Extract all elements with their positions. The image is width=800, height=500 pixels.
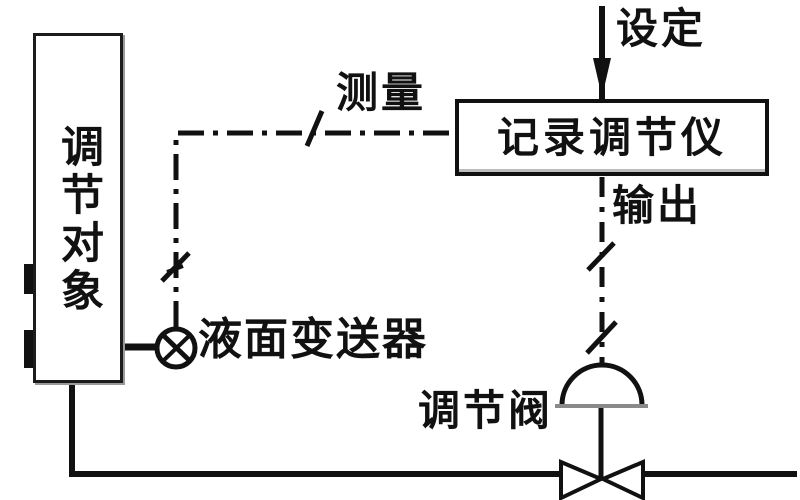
controller-box: 记录调节仪: [455, 99, 769, 176]
diagram-canvas: 调节对象 记录调节仪 设定 测量 输出 调节阀 液面变送器: [0, 0, 800, 500]
ink-artifact: [24, 264, 33, 368]
controller-label: 记录调节仪: [497, 117, 727, 159]
output-label: 输出: [612, 185, 702, 227]
measurement-label: 测量: [336, 72, 426, 114]
level-transmitter-label: 液面变送器: [198, 318, 428, 362]
setpoint-label: 设定: [616, 8, 706, 50]
arrow-down-icon: [593, 58, 611, 97]
signal-tick-icon: [307, 111, 322, 146]
control-valve-label: 调节阀: [418, 390, 553, 432]
measurement-signal-line: [162, 111, 455, 327]
valve-body-right: [603, 462, 643, 498]
controlled-object-label: 调节对象: [57, 36, 100, 316]
valve-body-left: [561, 462, 601, 498]
controlled-object-box: 调节对象: [33, 33, 123, 383]
control-valve-icon: [555, 365, 648, 498]
signal-tick-icon: [588, 243, 614, 270]
level-transmitter-icon: [122, 322, 195, 367]
signal-tick-icon: [167, 266, 183, 272]
valve-actuator-dome: [562, 365, 642, 405]
setpoint-line: [593, 6, 611, 99]
